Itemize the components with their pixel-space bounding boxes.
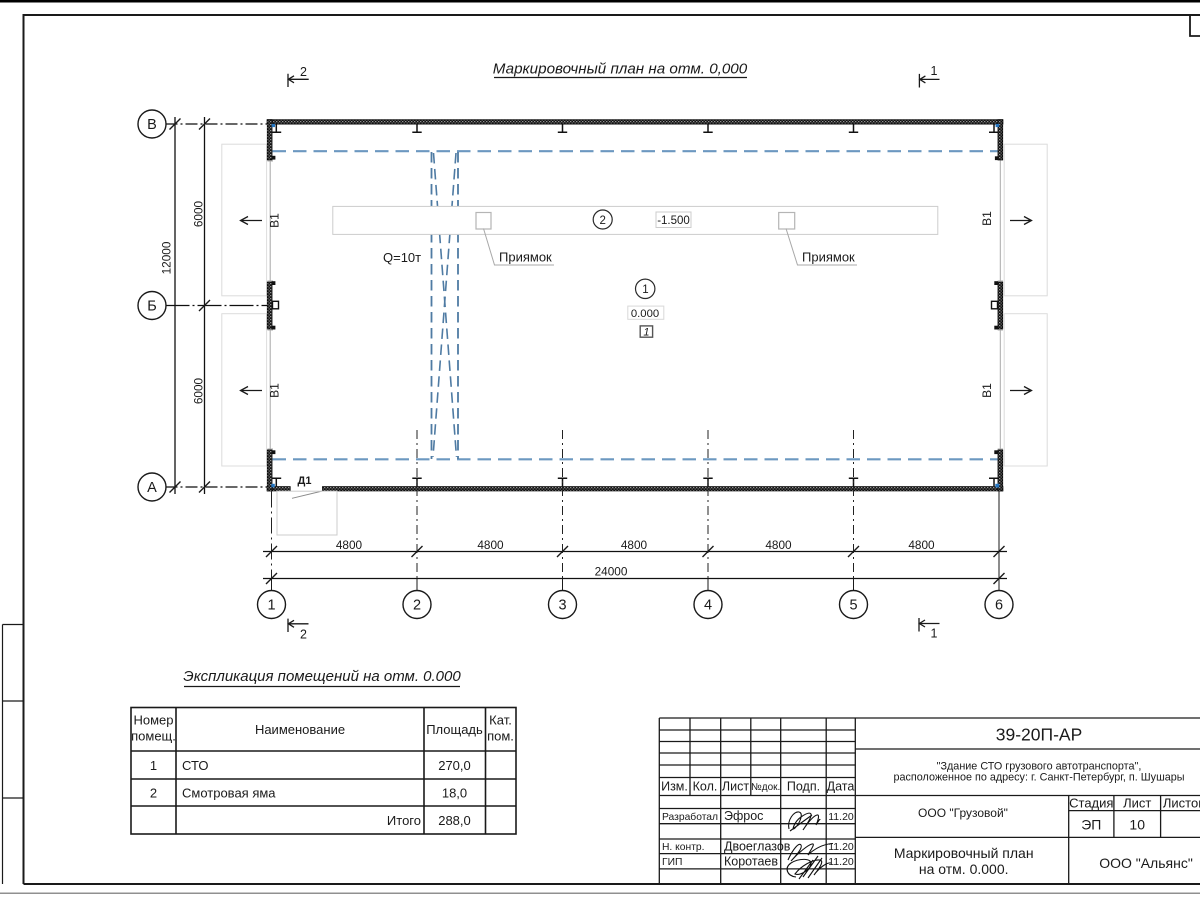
svg-text:6000: 6000	[192, 200, 206, 227]
svg-text:В1: В1	[980, 383, 994, 398]
svg-text:1: 1	[642, 284, 648, 296]
svg-text:Б: Б	[147, 299, 157, 315]
svg-text:Д1: Д1	[298, 475, 312, 487]
svg-text:Экспликация помещений на отм.: Экспликация помещений на отм. 0.000	[183, 668, 461, 685]
svg-text:Номер: Номер	[133, 713, 173, 728]
svg-text:24000: 24000	[595, 565, 628, 579]
svg-text:-1.500: -1.500	[657, 215, 690, 227]
svg-text:СТО: СТО	[182, 758, 208, 773]
svg-text:Лист: Лист	[1123, 796, 1151, 811]
svg-text:39-20П-АР: 39-20П-АР	[996, 725, 1083, 745]
svg-text:18,0: 18,0	[442, 786, 467, 801]
svg-text:ГИП: ГИП	[662, 857, 682, 868]
svg-text:Маркировочный план: Маркировочный план	[894, 845, 1034, 861]
svg-text:ООО "Грузовой": ООО "Грузовой"	[918, 806, 1008, 820]
svg-text:А: А	[147, 480, 157, 496]
svg-text:Подп.: Подп.	[787, 780, 820, 794]
svg-text:12000: 12000	[160, 241, 174, 274]
svg-text:В1: В1	[980, 211, 994, 226]
svg-text:4: 4	[704, 598, 712, 614]
svg-text:пом.: пом.	[487, 729, 514, 744]
svg-text:Стадия: Стадия	[1069, 796, 1113, 811]
svg-text:Эфрос: Эфрос	[724, 809, 763, 823]
svg-text:2: 2	[150, 786, 157, 801]
svg-text:ООО "Альянс": ООО "Альянс"	[1099, 855, 1193, 871]
svg-text:на отм. 0.000.: на отм. 0.000.	[919, 861, 1009, 877]
svg-text:11.20: 11.20	[828, 811, 854, 823]
svg-text:Листов: Листов	[1163, 796, 1200, 811]
svg-text:1: 1	[150, 758, 157, 773]
svg-text:2: 2	[300, 627, 307, 641]
svg-text:10: 10	[1129, 817, 1145, 833]
svg-text:Маркировочный план на отм. 0,0: Маркировочный план на отм. 0,000	[493, 61, 748, 78]
svg-text:Кол.: Кол.	[693, 780, 718, 794]
svg-text:1: 1	[931, 627, 938, 641]
svg-text:3: 3	[558, 598, 566, 614]
svg-text:Приямок: Приямок	[499, 250, 552, 265]
svg-text:Наименование: Наименование	[255, 722, 345, 737]
svg-text:расположенное по адресу: г. Са: расположенное по адресу: г. Санкт-Петерб…	[894, 772, 1185, 784]
svg-text:Кат.: Кат.	[489, 713, 512, 728]
svg-text:Q=10т: Q=10т	[383, 250, 421, 265]
svg-text:2: 2	[300, 65, 307, 79]
svg-text:помещ.: помещ.	[131, 729, 176, 744]
svg-text:ЭП: ЭП	[1081, 817, 1101, 833]
svg-text:В1: В1	[268, 383, 282, 398]
svg-text:4800: 4800	[621, 538, 648, 552]
svg-text:4800: 4800	[765, 538, 792, 552]
svg-text:1: 1	[643, 326, 649, 338]
svg-text:6000: 6000	[192, 377, 206, 404]
svg-text:Коротаев: Коротаев	[724, 855, 778, 869]
svg-text:1: 1	[931, 64, 938, 78]
svg-text:5: 5	[849, 598, 857, 614]
svg-text:Н. контр.: Н. контр.	[662, 842, 705, 853]
svg-text:В: В	[147, 117, 157, 133]
svg-text:Разработал: Разработал	[662, 811, 718, 823]
svg-text:Смотровая яма: Смотровая яма	[182, 786, 276, 801]
svg-text:1: 1	[267, 598, 275, 614]
svg-text:Дата: Дата	[827, 780, 855, 794]
svg-text:270,0: 270,0	[438, 758, 471, 773]
svg-text:2: 2	[599, 215, 605, 227]
svg-text:Площадь: Площадь	[426, 722, 483, 737]
svg-text:0.000: 0.000	[631, 308, 659, 320]
svg-text:№док.: №док.	[751, 782, 780, 793]
svg-text:Приямок: Приямок	[802, 250, 855, 265]
svg-text:Двоеглазов: Двоеглазов	[724, 840, 791, 854]
svg-text:4800: 4800	[336, 538, 363, 552]
svg-text:Лист: Лист	[722, 780, 749, 794]
svg-text:288,0: 288,0	[438, 813, 471, 828]
svg-text:4800: 4800	[477, 538, 504, 552]
svg-text:В1: В1	[268, 213, 282, 228]
svg-text:11.20: 11.20	[828, 841, 854, 853]
svg-text:Итого: Итого	[387, 813, 421, 828]
svg-text:6: 6	[995, 598, 1003, 614]
svg-text:Изм.: Изм.	[661, 780, 688, 794]
svg-text:2: 2	[413, 598, 421, 614]
svg-text:4800: 4800	[908, 538, 935, 552]
svg-text:11.20: 11.20	[828, 856, 854, 868]
